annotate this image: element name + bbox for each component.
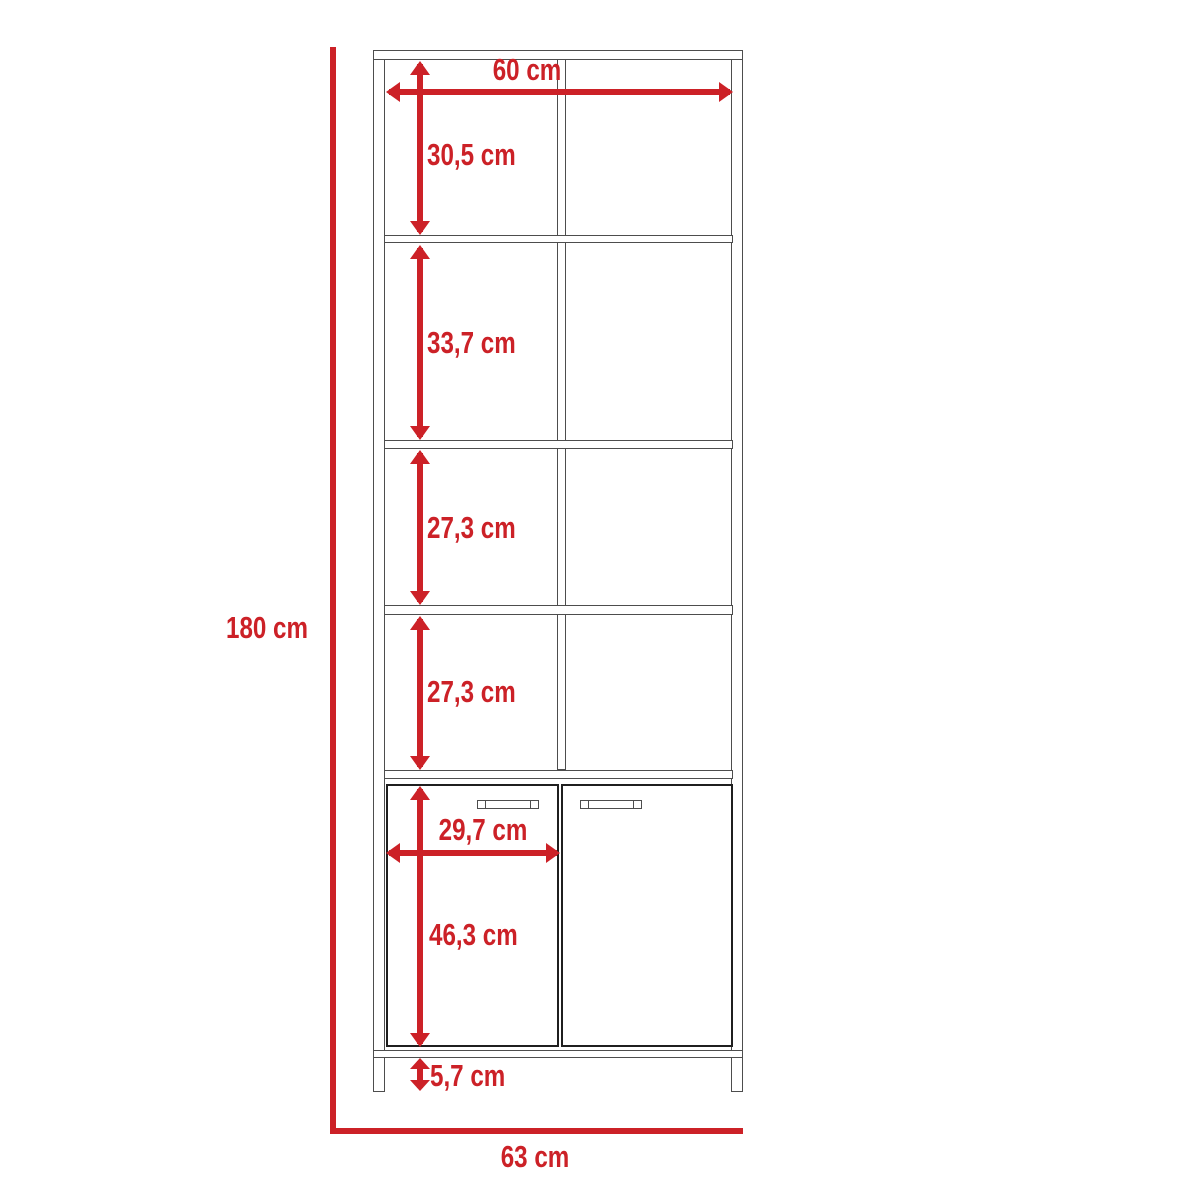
arrow-line [389,89,730,95]
label-overall-width: 63 cm [457,1139,613,1175]
arrow-line [417,248,423,437]
cabinet-left-side-panel [373,50,385,1092]
shelf-3 [384,605,733,615]
door-handle-right [580,800,642,809]
cabinet-bottom-panel [373,1050,743,1058]
arrow-line [417,619,423,767]
label-door-width: 29,7 cm [405,812,561,848]
shelf-1 [384,235,733,243]
label-inner-width: 60 cm [449,52,605,88]
cabinet-center-divider [557,59,566,770]
arrow-line [389,850,557,856]
dim-arrow-leg-height [409,1058,431,1091]
label-compartment-4-height: 27,3 cm [427,674,516,710]
arrow-line [417,1061,423,1088]
height-reference-line [330,47,336,1134]
arrow-line [417,453,423,602]
door-handle-left [477,800,539,809]
label-compartment-1-height: 30,5 cm [427,137,516,173]
door-right [561,784,733,1047]
label-compartment-2-height: 33,7 cm [427,325,516,361]
width-reference-line [330,1128,743,1134]
label-door-height: 46,3 cm [429,917,518,953]
label-overall-height: 180 cm [152,610,308,646]
label-compartment-3-height: 27,3 cm [427,510,516,546]
shelf-4 [384,770,733,779]
label-leg-height: 5,7 cm [430,1058,505,1094]
dimension-diagram: 60 cm 30,5 cm 33,7 cm 27,3 cm 27,3 cm 29… [0,0,1200,1200]
shelf-2 [384,440,733,449]
